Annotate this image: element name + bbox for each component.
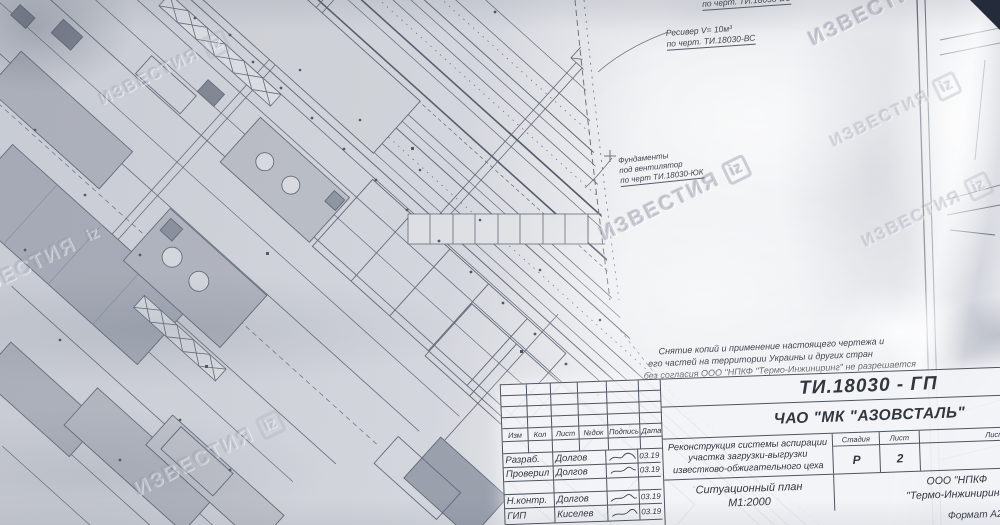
partition-strip bbox=[408, 214, 640, 244]
signature bbox=[606, 449, 638, 464]
title-block-main: ТИ.18030 - ГП ЧАО "МК "АЗОВСТАЛЬ" Реконс… bbox=[661, 365, 1000, 525]
project-description: Реконструкция системы аспирации участка … bbox=[663, 434, 834, 480]
revision-table: Изм Кол Лист №док Подпись Дата Разраб. Д… bbox=[501, 380, 667, 525]
signature bbox=[608, 504, 641, 521]
title-block: Изм Кол Лист №док Подпись Дата Разраб. Д… bbox=[500, 364, 1000, 525]
organization-name: ООО "НПКФ "Термо-Инжиниринг" bbox=[834, 466, 1000, 511]
stage-sheet-table: Стадия Р Лист 2 Листов bbox=[833, 425, 1000, 474]
blueprint-photo: ИЗВЕСТИЯ iz ИЗВЕСТИЯ iz ИЗВЕСТИЯ iz ИЗВЕ… bbox=[0, 0, 1000, 525]
drawing-title: Ситуационный план М1:2000 bbox=[664, 475, 835, 517]
signature bbox=[607, 463, 639, 478]
format-label: Формат А2 bbox=[948, 509, 1000, 522]
signature bbox=[608, 490, 640, 505]
